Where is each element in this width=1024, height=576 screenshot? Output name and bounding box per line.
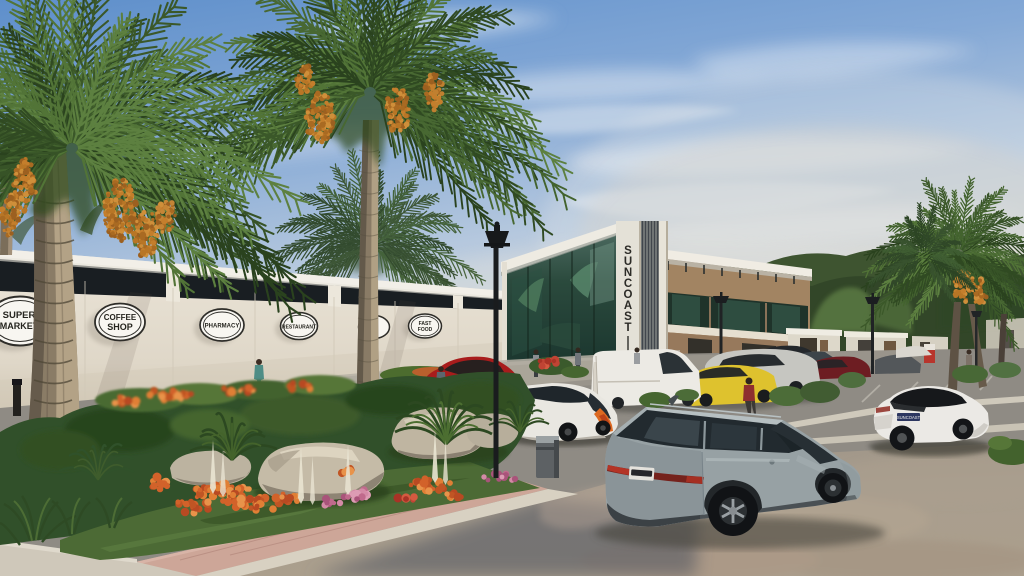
svg-text:PHARMACY: PHARMACY — [205, 324, 240, 330]
svg-text:FOOD: FOOD — [418, 327, 433, 333]
svg-text:RESTAURANT: RESTAURANT — [282, 325, 316, 331]
svg-text:T: T — [624, 322, 631, 334]
svg-text:MARKET: MARKET — [0, 321, 39, 331]
svg-text:SHOP: SHOP — [107, 322, 133, 332]
svg-text:SUNCOAST: SUNCOAST — [897, 415, 921, 420]
svg-text:COFFEE: COFFEE — [104, 313, 137, 322]
svg-text:SUPER: SUPER — [3, 310, 36, 321]
